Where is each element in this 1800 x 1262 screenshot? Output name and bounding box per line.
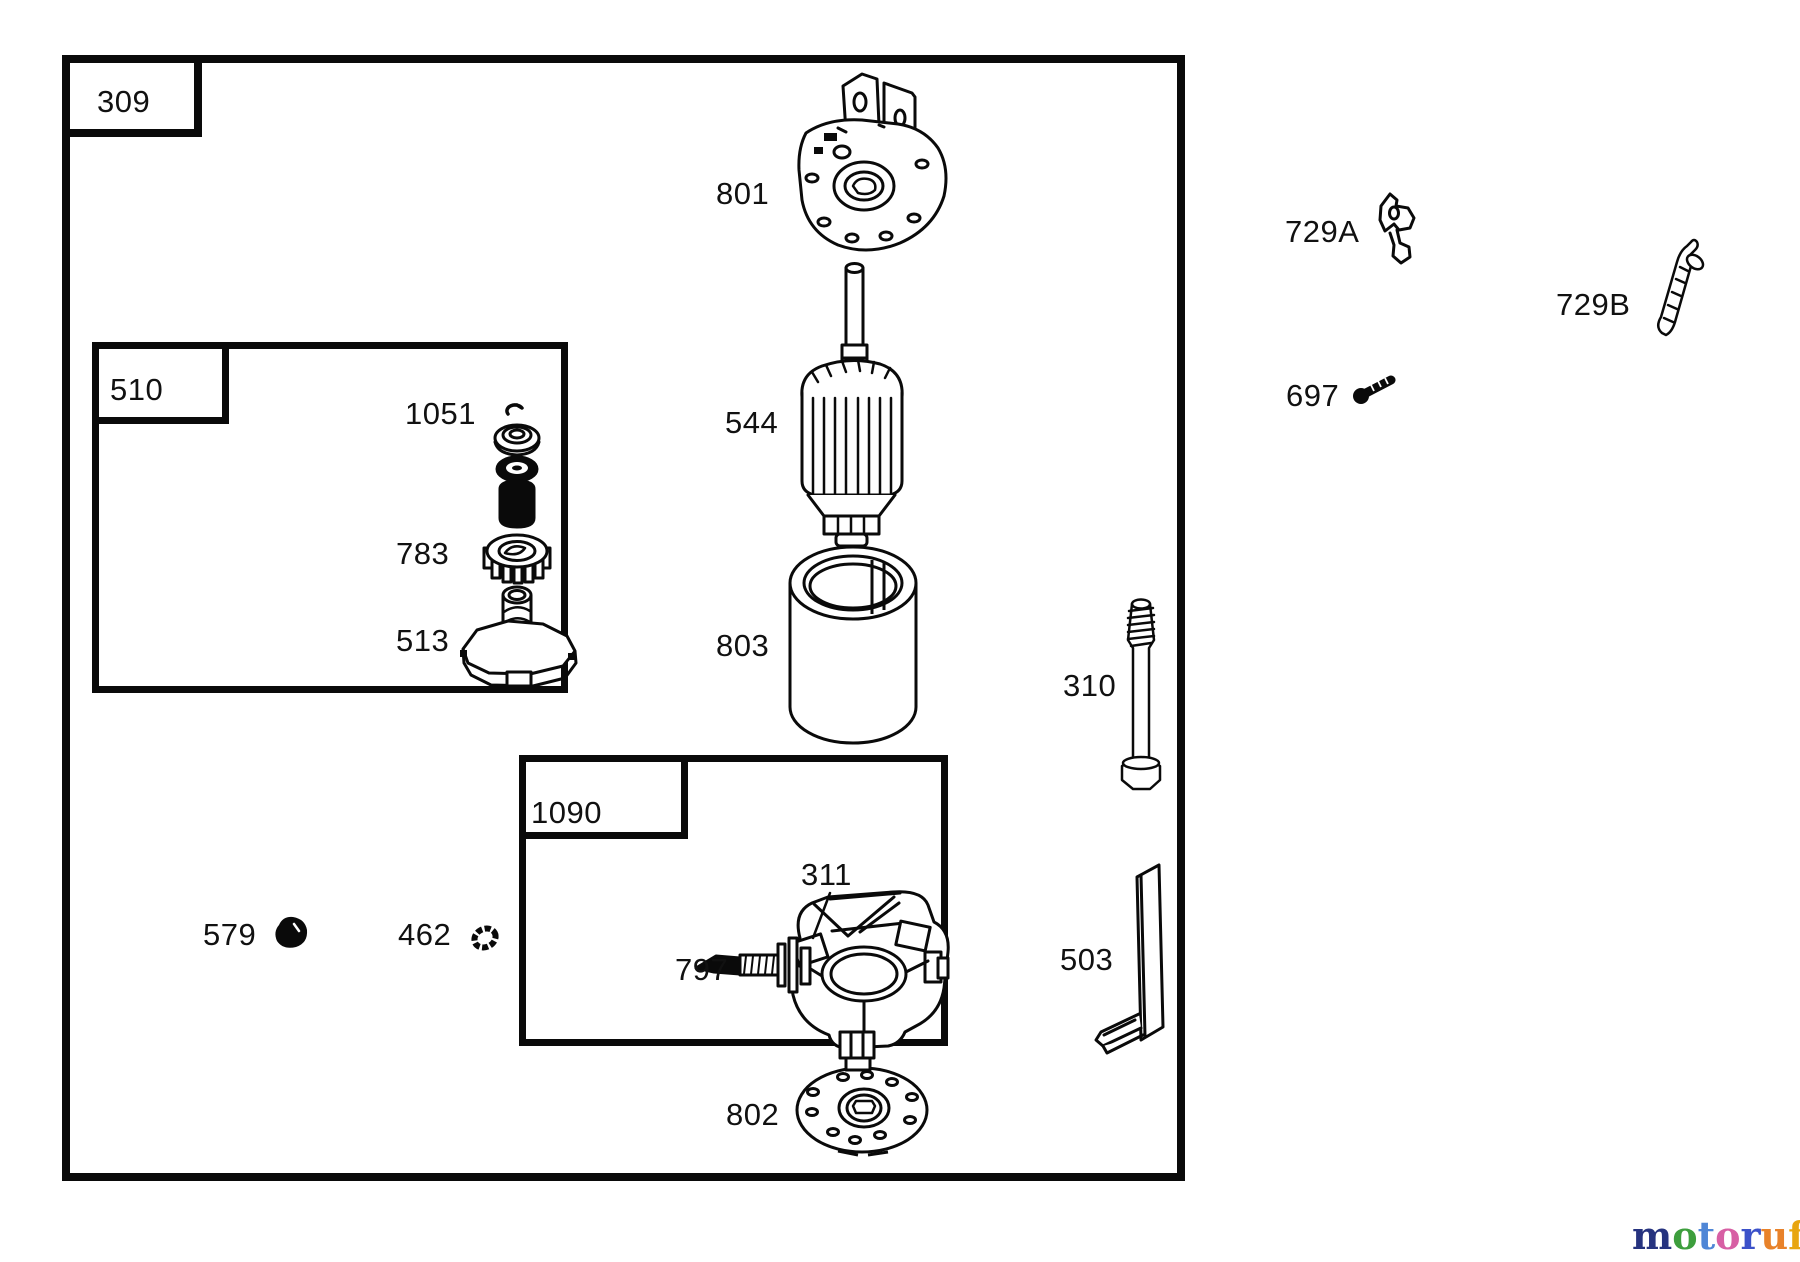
part-label-729B: 729B: [1556, 289, 1630, 320]
end-cap-bracket-drawing: [799, 74, 946, 250]
part-label-801: 801: [716, 178, 769, 209]
clip-729b-drawing: [1658, 240, 1706, 335]
part-label-462: 462: [398, 919, 451, 950]
part-label-802: 802: [726, 1099, 779, 1130]
end-plate-drawing: [797, 1068, 927, 1155]
washer-drawing: [471, 925, 499, 951]
part-label-697: 697: [1286, 380, 1339, 411]
logo-letter: t: [1698, 1213, 1716, 1258]
brush-holder-drawing: [696, 892, 948, 1070]
exploded-parts-artwork: [0, 0, 1800, 1262]
logo-letter: f: [1788, 1213, 1800, 1258]
part-label-783: 783: [396, 538, 449, 569]
part-label-513: 513: [396, 625, 449, 656]
dust-cap-drawing: [275, 917, 307, 948]
part-label-1051: 1051: [405, 398, 476, 429]
clutch-drawing: [460, 587, 576, 686]
part-label-797: 797: [675, 954, 728, 985]
frame-label-1090: 1090: [531, 797, 602, 828]
part-label-803: 803: [716, 630, 769, 661]
frame-label-309: 309: [97, 86, 150, 117]
logo-letter: u: [1761, 1213, 1789, 1258]
logo-letter: r: [1741, 1213, 1761, 1258]
part-label-503: 503: [1060, 944, 1113, 975]
through-bolt-drawing: [1122, 600, 1160, 790]
logo-letter: o: [1672, 1213, 1697, 1258]
parts-diagram-canvas: 309 510 1090 801 544 803 802 1051 783 51…: [0, 0, 1800, 1262]
logo-letter: m: [1632, 1213, 1672, 1258]
pinion-gear-drawing: [484, 535, 550, 583]
part-label-729A: 729A: [1285, 216, 1359, 247]
part-label-311: 311: [801, 859, 852, 890]
clip-729a-drawing: [1380, 194, 1414, 263]
logo-letter: o: [1715, 1213, 1740, 1258]
motoruf-logo: motoruf.de: [1632, 1214, 1792, 1260]
motor-housing-drawing: [790, 547, 916, 743]
frame-label-510: 510: [110, 374, 163, 405]
part-label-544: 544: [725, 407, 778, 438]
armature-drawing: [802, 264, 902, 561]
part-label-310: 310: [1063, 670, 1116, 701]
retainer-stack-drawing: [495, 405, 539, 527]
part-label-579: 579: [203, 919, 256, 950]
screw-drawing: [1353, 378, 1391, 404]
